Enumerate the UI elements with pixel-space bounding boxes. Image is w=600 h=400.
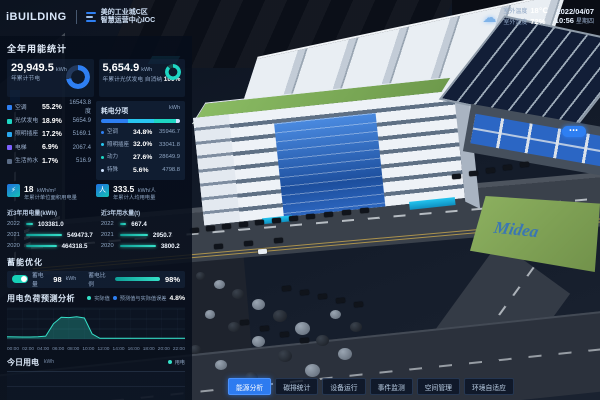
tree	[228, 322, 240, 332]
year-bar	[26, 245, 57, 247]
storage-ratio: 98%	[165, 275, 180, 284]
energy-statistics-panel: 全年用能统计 29,949.5kWh 年累计节电 5,654.9kWh 年累计光…	[0, 36, 192, 400]
category-dot	[7, 145, 12, 150]
page-title: 美的工业城C区 智慧运营中心IOC	[101, 9, 155, 26]
bottom-nav: 能源分析碳排统计设备运行事件监测空间管理环境自适应	[228, 378, 514, 395]
storage-section-title: 蓄能优化	[7, 257, 185, 268]
kpi-label: 年累计人均用电量	[113, 195, 156, 202]
header-right: ☁ 室外温度18℃ 室外湿度72% 2022/04/07 10:56星期四	[482, 6, 594, 28]
category-percent: 55.2%	[42, 104, 66, 111]
pv-card: 5,654.9kWh 年累计光伏发电 自消纳 100%	[99, 59, 186, 97]
date: 2022/04/07	[555, 7, 594, 17]
nav-tab-能源分析[interactable]: 能源分析	[228, 378, 271, 395]
today-title: 今日用电	[7, 357, 39, 368]
category-label: 特殊	[107, 167, 133, 173]
weather-cloud-icon: ☁	[482, 9, 496, 26]
tree	[350, 322, 362, 332]
x-tick-label: 00:00	[7, 347, 19, 352]
saving-breakdown-row: 光伏发电18.9%5654.9	[7, 114, 91, 127]
consumption-breakdown-panel: 耗电分项 kWh 空调34.8%35946.7照明插座32.0%33041.8动…	[96, 101, 185, 180]
category-value: 516.9	[66, 158, 91, 164]
forecast-title: 用电负荷预测分析	[7, 293, 75, 304]
kpi-text: 333.5 kWh/人年累计人均用电量	[113, 184, 156, 202]
category-dot	[7, 119, 12, 124]
category-percent: 5.6%	[133, 167, 156, 174]
category-dot	[101, 169, 104, 172]
load-forecast-chart	[7, 307, 185, 346]
consumption-rows: 空调34.8%35946.7照明插座32.0%33041.8动力27.6%286…	[101, 126, 180, 176]
category-percent: 1.7%	[42, 158, 66, 165]
saving-breakdown-row: 电梯6.9%2067.4	[7, 141, 91, 154]
x-tick-label: 08:00	[67, 347, 79, 352]
category-percent: 27.6%	[133, 154, 156, 161]
summary-cards: 29,949.5kWh 年累计节电 5,654.9kWh 年累计光伏发电 自消纳…	[7, 59, 185, 97]
storage-toggle[interactable]	[12, 275, 28, 283]
x-tick-label: 22:00	[173, 347, 185, 352]
electricity-chart-title: 近3年用电量(kWh)	[7, 208, 93, 217]
year-label: 2021	[7, 232, 23, 238]
tree	[295, 322, 310, 335]
category-dot	[7, 159, 12, 164]
category-label: 空调	[15, 105, 42, 111]
nav-tab-碳排统计[interactable]: 碳排统计	[275, 378, 318, 395]
category-value: 5654.9	[66, 118, 91, 124]
actual-legend-dot	[87, 296, 91, 300]
stack-segment	[176, 119, 180, 123]
year-label: 2020	[7, 243, 23, 249]
category-value: 28649.9	[156, 154, 180, 160]
x-tick-label: 20:00	[158, 347, 170, 352]
x-tick-label: 06:00	[52, 347, 64, 352]
storage-row: 蓄电量 98 kWh 蓄电比例 98%	[7, 271, 185, 288]
kpi-value: 18 kWh/m²	[24, 184, 77, 194]
tree	[252, 299, 265, 310]
tree	[196, 272, 205, 280]
category-value: 16543.8 度	[66, 100, 91, 115]
kpi-text: 18 kWh/m²年累计单位面积用电量	[24, 184, 77, 202]
kpi-item: 人333.5 kWh/人年累计人均用电量	[96, 184, 185, 202]
year-value: 667.4	[131, 221, 146, 228]
consumption-unit: kWh	[169, 105, 180, 115]
category-dot	[7, 105, 12, 110]
category-label: 生活热水	[15, 158, 42, 164]
saving-breakdown-row: 空调55.2%16543.8 度	[7, 101, 91, 114]
time: 10:56	[555, 16, 574, 25]
year-value: 103381.0	[38, 221, 64, 228]
consumption-row: 照明插座32.0%33041.8	[101, 139, 180, 152]
forecast-legend: 实际值 预测值与实际值误差 4.8%	[87, 295, 185, 302]
tree	[330, 310, 341, 319]
year-value: 3800.2	[161, 243, 180, 250]
saving-card: 29,949.5kWh 年累计节电	[7, 59, 94, 97]
category-label: 电梯	[15, 145, 42, 151]
datetime: 2022/04/07 10:56星期四	[555, 7, 594, 28]
forecast-error-value: 4.8%	[170, 295, 186, 302]
category-value: 5169.1	[66, 131, 91, 137]
outdoor-temp: 18℃	[530, 6, 547, 15]
year-bar	[120, 245, 156, 247]
header-divider	[76, 10, 77, 24]
area-energy-icon: ⚡	[7, 184, 20, 197]
year-bar-row: 20212950.7	[101, 230, 185, 241]
category-label: 照明插座	[107, 142, 133, 148]
year-bar	[26, 234, 62, 236]
year-bar-row: 2020464318.5	[7, 241, 93, 252]
category-percent: 32.0%	[133, 141, 156, 148]
today-legend-dot	[168, 360, 172, 364]
tree	[316, 335, 329, 346]
tree	[205, 310, 215, 319]
year-bar	[120, 223, 126, 225]
brand-line2: 智慧运营中心IOC	[101, 17, 155, 26]
nav-tab-环境自适应[interactable]: 环境自适应	[464, 378, 514, 395]
year-label: 2022	[101, 221, 117, 227]
header: iBUILDING 美的工业城C区 智慧运营中心IOC ☁ 室外温度18℃ 室外…	[0, 0, 600, 34]
today-unit: kWh	[44, 359, 54, 365]
tree	[232, 289, 244, 299]
year-label: 2021	[101, 232, 117, 238]
storage-ratio-label: 蓄电比例	[88, 270, 111, 288]
year-label: 2020	[101, 243, 117, 249]
forecast-legend-dot	[113, 296, 117, 300]
brand-icon	[86, 12, 96, 22]
kpi-value: 333.5 kWh/人	[113, 184, 156, 194]
tree	[252, 336, 265, 347]
category-percent: 18.9%	[42, 118, 66, 125]
saving-value: 29,949.5	[11, 62, 54, 74]
weather-info: 室外温度18℃ 室外湿度72%	[503, 6, 547, 28]
forecast-x-axis: 00:0002:0004:0006:0008:0010:0012:0014:00…	[7, 347, 185, 352]
tree	[214, 280, 225, 289]
x-tick-label: 14:00	[113, 347, 125, 352]
category-label: 空调	[107, 129, 133, 135]
storage-amount-label: 蓄电量	[32, 270, 49, 288]
year-value: 2950.7	[153, 232, 172, 239]
tree	[338, 348, 352, 360]
storage-ratio-bar	[115, 277, 161, 281]
stack-segment	[101, 119, 128, 123]
year-bar-row: 2021549473.7	[7, 230, 93, 241]
pv-donut-chart	[165, 64, 181, 80]
category-value: 33041.8	[156, 142, 180, 148]
kpi-label: 年累计单位面积用电量	[24, 195, 77, 202]
x-tick-label: 02:00	[22, 347, 34, 352]
consumption-title: 耗电分项	[101, 105, 128, 115]
category-percent: 34.8%	[133, 129, 156, 136]
year-bar	[26, 223, 33, 225]
category-dot	[101, 156, 104, 159]
tree	[278, 350, 292, 362]
storage-amount: 98	[53, 275, 61, 284]
app-logo: iBUILDING	[6, 11, 67, 23]
tree	[215, 360, 227, 370]
category-value: 2067.4	[66, 145, 91, 151]
weekday: 星期四	[576, 19, 594, 25]
x-tick-label: 04:00	[37, 347, 49, 352]
nav-tab-空间管理[interactable]: 空间管理	[417, 378, 460, 395]
x-tick-label: 18:00	[143, 347, 155, 352]
category-dot	[101, 143, 104, 146]
category-percent: 17.2%	[42, 131, 66, 138]
outdoor-humidity: 72%	[530, 17, 545, 26]
year-bar-row: 20203800.2	[101, 241, 185, 252]
today-usage-chart	[7, 371, 185, 400]
consumption-row: 空调34.8%35946.7	[101, 126, 180, 139]
ioc-dashboard: Midea ••• iBUILDING 美的工业城C区 智慧运营中心IOC ☁ …	[0, 0, 600, 400]
category-value: 4798.8	[156, 167, 180, 173]
year-label: 2022	[7, 221, 23, 227]
category-label: 光伏发电	[15, 118, 42, 124]
pv-value: 5,654.9	[103, 62, 140, 74]
x-tick-label: 12:00	[97, 347, 109, 352]
consumption-stacked-bar	[101, 119, 180, 123]
year-bar-row: 2022103381.0	[7, 219, 93, 230]
category-label: 动力	[107, 154, 133, 160]
tree	[305, 364, 320, 377]
tree	[273, 310, 287, 322]
year-bar-row: 2022667.4	[101, 219, 185, 230]
x-tick-label: 10:00	[82, 347, 94, 352]
category-dot	[7, 132, 12, 137]
three-year-charts: 近3年用电量(kWh) 2022103381.02021549473.72020…	[7, 208, 185, 252]
category-percent: 6.9%	[42, 144, 66, 151]
saving-breakdown-list: 空调55.2%16543.8 度光伏发电18.9%5654.9照明插座17.2%…	[7, 101, 91, 180]
per-capita-energy-icon: 人	[96, 184, 109, 197]
three-year-electricity: 近3年用电量(kWh) 2022103381.02021549473.72020…	[7, 208, 93, 252]
x-tick-label: 16:00	[128, 347, 140, 352]
category-value: 35946.7	[156, 129, 180, 135]
nav-tab-事件监测[interactable]: 事件监测	[370, 378, 413, 395]
kpi-item: ⚡18 kWh/m²年累计单位面积用电量	[7, 184, 96, 202]
kpi-row: ⚡18 kWh/m²年累计单位面积用电量人333.5 kWh/人年累计人均用电量	[7, 184, 185, 202]
three-year-water: 近3年用水量(t) 2022667.420212950.720203800.2	[101, 208, 185, 252]
consumption-row: 特殊5.6%4798.8	[101, 164, 180, 177]
consumption-row: 动力27.6%28649.9	[101, 151, 180, 164]
brand-line1: 美的工业城C区	[101, 9, 155, 18]
category-label: 照明插座	[15, 131, 42, 137]
year-value: 464318.5	[62, 243, 88, 250]
saving-donut-chart	[66, 65, 90, 89]
stack-segment	[128, 119, 153, 123]
saving-breakdown-row: 照明插座17.2%5169.1	[7, 128, 91, 141]
saving-breakdown-row: 生活热水1.7%516.9	[7, 155, 91, 168]
water-chart-title: 近3年用水量(t)	[101, 208, 185, 217]
year-value: 549473.7	[67, 232, 93, 239]
today-legend: 用电	[168, 359, 185, 366]
panel-title: 全年用能统计	[7, 42, 185, 55]
category-dot	[101, 131, 104, 134]
year-bar	[120, 234, 148, 236]
stack-segment	[154, 119, 176, 123]
nav-tab-设备运行[interactable]: 设备运行	[322, 378, 365, 395]
